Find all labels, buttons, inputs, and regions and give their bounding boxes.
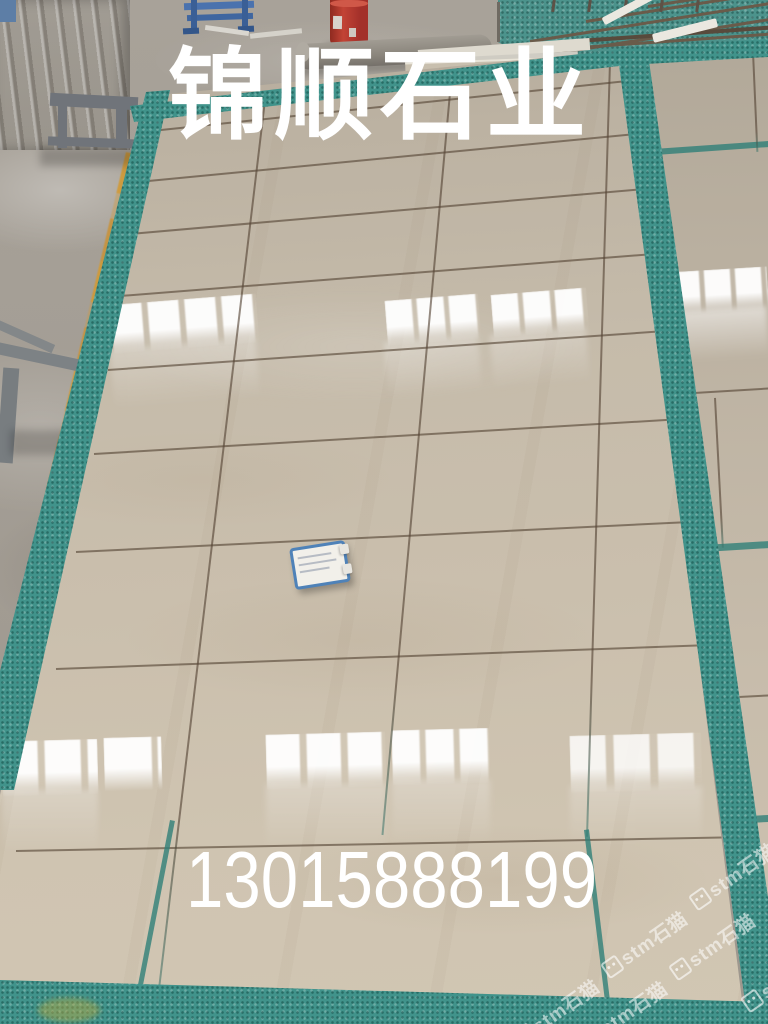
tag-clip bbox=[339, 543, 349, 554]
blue-a-frame-foot bbox=[183, 28, 199, 35]
grout-line-vertical bbox=[752, 52, 758, 152]
grout-line-vertical bbox=[586, 62, 611, 837]
tag-clip bbox=[342, 563, 352, 574]
grout-line-vertical bbox=[381, 93, 451, 835]
frame-edge bbox=[497, 2, 500, 42]
window-reflection bbox=[265, 731, 386, 790]
drum-label bbox=[333, 16, 342, 29]
grout-line bbox=[94, 418, 678, 455]
drum-label bbox=[349, 28, 356, 37]
grout-line-vertical bbox=[714, 398, 724, 548]
phone-number-overlay: 13015888199 bbox=[186, 840, 597, 920]
grout-line bbox=[56, 644, 711, 670]
window-reflection bbox=[103, 736, 162, 791]
reflection-smear bbox=[2, 790, 98, 855]
red-drum-rim bbox=[330, 0, 368, 7]
reflection-smear bbox=[110, 338, 260, 409]
warehouse-photo: 锦顺石业 13015888199 stm石猫 stm石猫 stm石猫 stm石猫… bbox=[0, 0, 768, 1024]
grout-line bbox=[130, 188, 648, 235]
blue-scrap bbox=[0, 0, 16, 22]
mat-stain bbox=[38, 998, 100, 1022]
company-name-overlay: 锦顺石业 bbox=[168, 46, 592, 146]
grout-line bbox=[76, 521, 695, 553]
price-tag bbox=[289, 540, 351, 590]
window-reflection bbox=[391, 728, 490, 787]
